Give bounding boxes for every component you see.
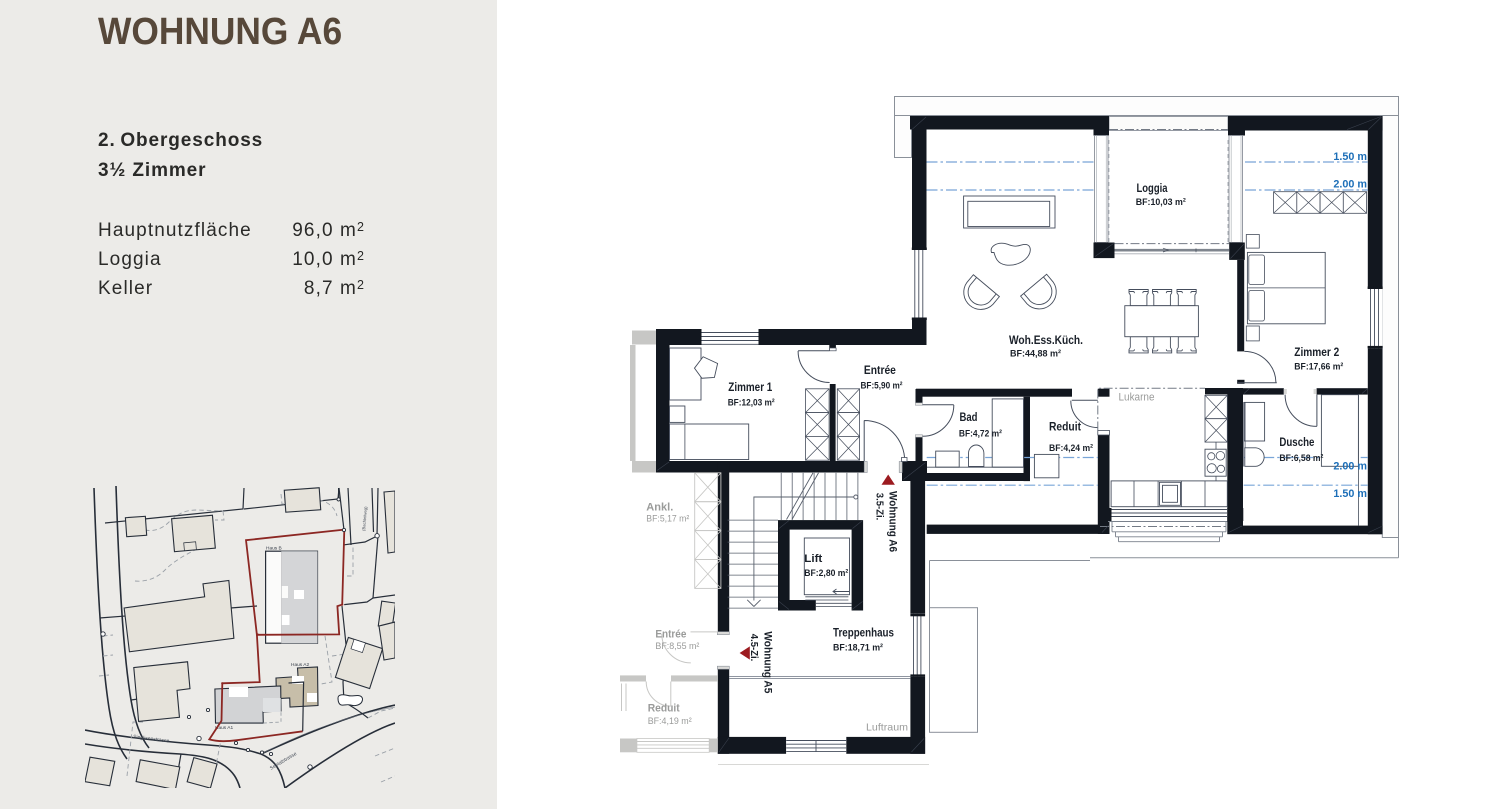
svg-text:Reduit: Reduit [648, 703, 680, 715]
svg-text:BF:10,03 m²: BF:10,03 m² [1136, 197, 1186, 207]
svg-text:3.5-Zi.: 3.5-Zi. [873, 493, 885, 521]
svg-text:Woh.Ess.Küch.: Woh.Ess.Küch. [1009, 335, 1083, 347]
svg-text:2.00 m: 2.00 m [1333, 179, 1367, 191]
svg-text:BF:5,17 m²: BF:5,17 m² [646, 514, 689, 524]
svg-text:BF:6,58 m²: BF:6,58 m² [1279, 453, 1323, 463]
svg-text:BF:4,24 m²: BF:4,24 m² [1049, 443, 1093, 453]
svg-text:Reduit: Reduit [1049, 422, 1081, 434]
svg-text:2.00 m: 2.00 m [1333, 461, 1367, 473]
svg-text:Loggia: Loggia [1137, 183, 1168, 195]
svg-text:Entrée: Entrée [655, 629, 686, 641]
svg-text:Lukarne: Lukarne [1119, 392, 1155, 404]
svg-text:Wohnung A6: Wohnung A6 [887, 491, 899, 552]
svg-text:Treppenhaus: Treppenhaus [833, 628, 894, 640]
svg-text:BF:44,88 m²: BF:44,88 m² [1010, 348, 1061, 358]
svg-text:BF:4,72 m²: BF:4,72 m² [959, 429, 1002, 439]
svg-text:Dusche: Dusche [1279, 437, 1314, 449]
svg-text:BF:8,55 m²: BF:8,55 m² [655, 641, 699, 651]
svg-text:Wohnung A5: Wohnung A5 [761, 631, 773, 693]
svg-text:BF:2,80 m²: BF:2,80 m² [804, 568, 848, 578]
svg-text:BF:17,66 m²: BF:17,66 m² [1294, 362, 1343, 372]
svg-text:Lift: Lift [804, 553, 822, 565]
svg-text:Zimmer 2: Zimmer 2 [1294, 347, 1339, 359]
svg-text:Ankl.: Ankl. [646, 502, 673, 514]
svg-text:Bad: Bad [960, 412, 978, 424]
svg-text:1.50 m: 1.50 m [1333, 151, 1367, 163]
svg-text:4.5-Zi.: 4.5-Zi. [748, 634, 760, 662]
svg-text:1.50 m: 1.50 m [1333, 488, 1367, 500]
svg-text:Entrée: Entrée [864, 365, 896, 377]
svg-text:BF:4,19 m²: BF:4,19 m² [648, 716, 692, 726]
svg-text:BF:18,71 m²: BF:18,71 m² [833, 643, 883, 653]
svg-text:Luftraum: Luftraum [866, 722, 908, 734]
svg-text:Zimmer 1: Zimmer 1 [728, 382, 773, 394]
svg-text:BF:5,90 m²: BF:5,90 m² [861, 381, 903, 391]
svg-text:BF:12,03 m²: BF:12,03 m² [728, 398, 775, 408]
